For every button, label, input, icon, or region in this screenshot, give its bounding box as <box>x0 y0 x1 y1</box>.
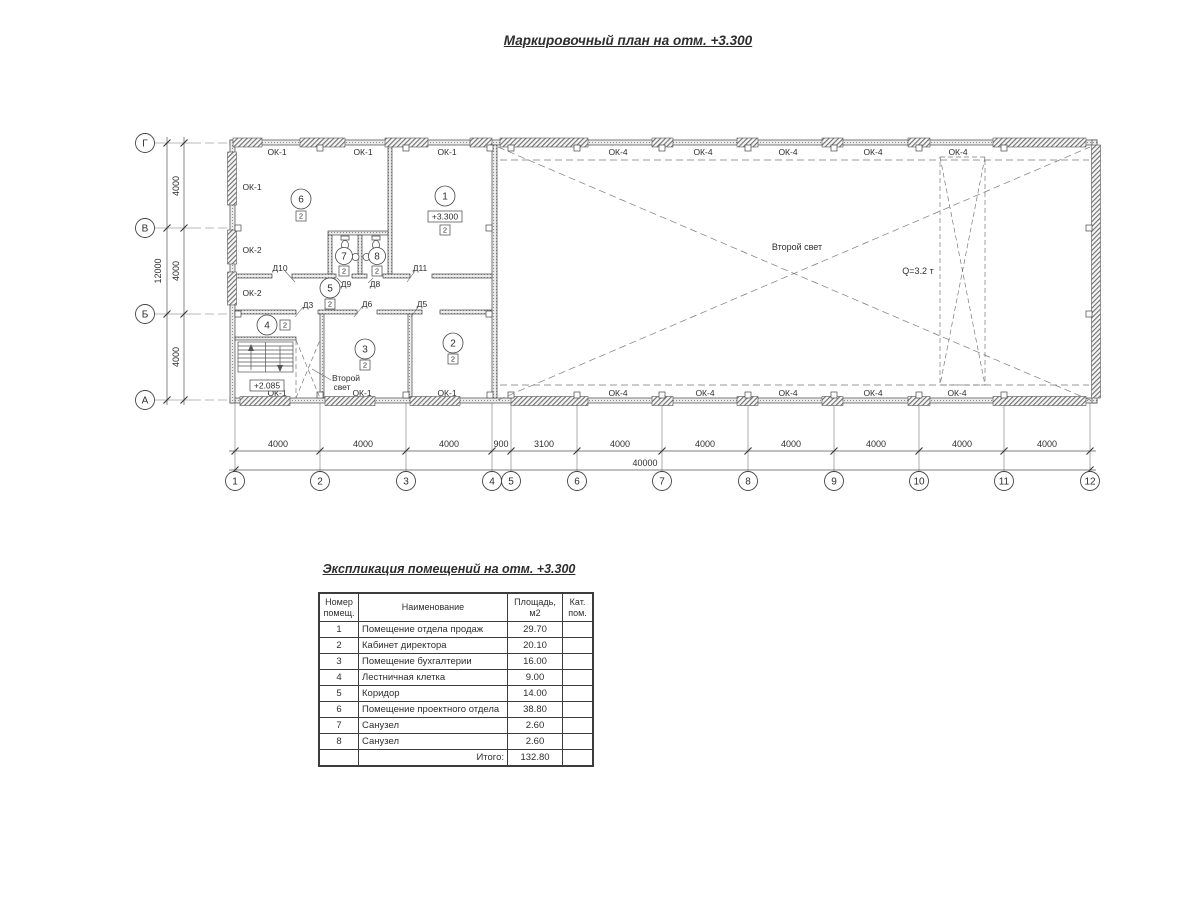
cell-room-name: Помещение бухгалтерии <box>359 654 508 670</box>
table-total-row: Итого: 132.80 <box>319 750 593 767</box>
axis-col-label: 7 <box>659 477 665 488</box>
room-number-3: 3 <box>362 345 368 356</box>
room-elevation-1: +3.300 <box>432 212 459 222</box>
cell-empty <box>563 750 594 767</box>
floor-plan: 12000 4000 4000 4000 4000 4000 4000 900 … <box>0 0 1200 545</box>
dim-bottom-segment: 4000 <box>866 439 886 449</box>
room-number-6: 6 <box>298 195 304 206</box>
annotations: +2.085 Второй свет Второй свет Q=3.2 т <box>250 242 934 392</box>
window-label: ОК-1 <box>437 388 456 398</box>
stair-opening-dashed <box>296 340 320 398</box>
table-row: 6 Помещение проектного отдела 38.80 <box>319 702 593 718</box>
header-room-category: Кат. пом. <box>563 593 594 622</box>
room-badge-6: 2 <box>299 212 303 221</box>
total-area-value: 132.80 <box>508 750 563 767</box>
cell-room-category <box>563 670 594 686</box>
window-label: ОК-4 <box>608 147 627 157</box>
room-badge-2: 2 <box>451 355 455 364</box>
dim-bottom-segment: 4000 <box>1037 439 1057 449</box>
cell-room-number: 4 <box>319 670 359 686</box>
cell-room-category <box>563 718 594 734</box>
room-number-2: 2 <box>450 339 456 350</box>
drawing-sheet: { "titles": { "plan": "Маркировочный пла… <box>0 0 1200 900</box>
dim-left-segment: 4000 <box>171 347 181 367</box>
cell-room-number: 5 <box>319 686 359 702</box>
room-badge-8: 2 <box>375 267 379 276</box>
axis-col-label: 11 <box>999 477 1010 488</box>
crane-shaft-dashed <box>940 157 985 385</box>
door-labels: Д10 Д9 Д8 Д11 Д3 Д6 Д5 <box>272 263 427 310</box>
window-label: ОК-4 <box>778 388 797 398</box>
room-number-5: 5 <box>327 284 333 295</box>
cell-room-area: 2.60 <box>508 718 563 734</box>
room-badge-7: 2 <box>342 267 346 276</box>
room-badge-1: 2 <box>443 226 447 235</box>
cell-room-name: Помещение отдела продаж <box>359 622 508 638</box>
cell-room-number: 2 <box>319 638 359 654</box>
axis-col-label: 4 <box>489 477 495 488</box>
total-label: Итого: <box>359 750 508 767</box>
cell-room-name: Лестничная клетка <box>359 670 508 686</box>
room-number-1: 1 <box>442 192 448 203</box>
second-light-hall-label: Второй свет <box>772 242 822 252</box>
cell-room-number: 7 <box>319 718 359 734</box>
room-number-4: 4 <box>264 321 270 332</box>
dim-bottom-segment: 4000 <box>695 439 715 449</box>
window-label: ОК-4 <box>948 147 967 157</box>
dim-bottom-segment: 4000 <box>268 439 288 449</box>
axis-col-label: 6 <box>574 477 580 488</box>
door-label-d6: Д6 <box>362 299 373 309</box>
header-room-name: Наименование <box>359 593 508 622</box>
dim-left-total: 12000 <box>153 258 163 283</box>
door-label-d8: Д8 <box>370 279 381 289</box>
dim-bottom-segment: 4000 <box>353 439 373 449</box>
axis-col-label: 12 <box>1084 477 1096 488</box>
stair-elevation-mark: +2.085 <box>254 381 281 391</box>
window-label: ОК-4 <box>863 147 882 157</box>
cell-room-area: 9.00 <box>508 670 563 686</box>
door-label-d9: Д9 <box>341 279 352 289</box>
table-row: 3 Помещение бухгалтерии 16.00 <box>319 654 593 670</box>
table-row: 7 Санузел 2.60 <box>319 718 593 734</box>
window-label: ОК-1 <box>437 147 456 157</box>
door-label-d10: Д10 <box>272 263 287 273</box>
window-label: ОК-4 <box>608 388 627 398</box>
cell-room-number: 8 <box>319 734 359 750</box>
dim-left-segment: 4000 <box>171 176 181 196</box>
header-room-area: Площадь, м2 <box>508 593 563 622</box>
table-row: 8 Санузел 2.60 <box>319 734 593 750</box>
cell-room-category <box>563 734 594 750</box>
room-explication-table: Номер помещ. Наименование Площадь, м2 Ка… <box>318 592 594 767</box>
axis-row-label: Г <box>142 139 148 150</box>
window-label: ОК-4 <box>695 388 714 398</box>
room-badge-4: 2 <box>283 321 287 330</box>
cell-room-area: 20.10 <box>508 638 563 654</box>
axis-col-label: 10 <box>913 477 925 488</box>
window-labels: ОК-1 ОК-1 ОК-1 ОК-4 ОК-4 ОК-4 ОК-4 ОК-4 … <box>242 147 967 398</box>
cell-room-area: 2.60 <box>508 734 563 750</box>
door-label-d5: Д5 <box>417 299 428 309</box>
cell-room-category <box>563 702 594 718</box>
window-label: ОК-2 <box>242 245 261 255</box>
axis-col-label: 3 <box>403 477 409 488</box>
room-number-8: 8 <box>374 252 380 263</box>
cell-room-category <box>563 686 594 702</box>
axis-col-label: 8 <box>745 477 751 488</box>
dim-bottom-segment: 4000 <box>952 439 972 449</box>
axis-col-label: 1 <box>232 477 238 488</box>
dim-bottom-segment: 900 <box>493 439 508 449</box>
window-label: ОК-2 <box>242 288 261 298</box>
cell-room-category <box>563 622 594 638</box>
explication-title: Экспликация помещений на отм. +3.300 <box>323 562 576 576</box>
table-row: 2 Кабинет директора 20.10 <box>319 638 593 654</box>
cell-room-area: 29.70 <box>508 622 563 638</box>
table-row: 5 Коридор 14.00 <box>319 686 593 702</box>
cell-room-name: Помещение проектного отдела <box>359 702 508 718</box>
axis-col-label: 9 <box>831 477 837 488</box>
window-label: ОК-4 <box>947 388 966 398</box>
cell-room-number: 3 <box>319 654 359 670</box>
dim-bottom-segment: 3100 <box>534 439 554 449</box>
door-label-d11: Д11 <box>413 263 428 273</box>
dim-left-segment: 4000 <box>171 261 181 281</box>
table-header-row: Номер помещ. Наименование Площадь, м2 Ка… <box>319 593 593 622</box>
second-light-stairs-label: свет <box>333 382 350 392</box>
window-label: ОК-4 <box>863 388 882 398</box>
window-label: ОК-1 <box>353 147 372 157</box>
window-label: ОК-1 <box>242 182 261 192</box>
second-light-dashed <box>498 147 1090 400</box>
dim-bottom-segment: 4000 <box>610 439 630 449</box>
room-badge-5: 2 <box>328 300 332 309</box>
cell-room-category <box>563 638 594 654</box>
window-label: ОК-1 <box>352 388 371 398</box>
cell-room-name: Санузел <box>359 734 508 750</box>
dim-bottom-segment: 4000 <box>439 439 459 449</box>
table-row: 1 Помещение отдела продаж 29.70 <box>319 622 593 638</box>
dim-bottom-segment: 4000 <box>781 439 801 449</box>
cell-room-number: 1 <box>319 622 359 638</box>
cell-room-area: 14.00 <box>508 686 563 702</box>
cell-room-name: Кабинет директора <box>359 638 508 654</box>
room-number-7: 7 <box>341 252 347 263</box>
cell-empty <box>319 750 359 767</box>
cell-room-category <box>563 654 594 670</box>
cell-room-area: 16.00 <box>508 654 563 670</box>
axis-col-label: 5 <box>508 477 514 488</box>
cell-room-name: Санузел <box>359 718 508 734</box>
window-label: ОК-1 <box>267 147 286 157</box>
cell-room-name: Коридор <box>359 686 508 702</box>
header-room-number: Номер помещ. <box>319 593 359 622</box>
dim-bottom-total: 40000 <box>632 458 657 468</box>
crane-capacity-label: Q=3.2 т <box>902 266 933 276</box>
room-badge-3: 2 <box>363 361 367 370</box>
axis-row-label: Б <box>142 310 149 321</box>
table-row: 4 Лестничная клетка 9.00 <box>319 670 593 686</box>
axis-col-label: 2 <box>317 477 323 488</box>
cell-room-area: 38.80 <box>508 702 563 718</box>
door-label-d3: Д3 <box>303 300 314 310</box>
axis-row-label: А <box>142 396 149 407</box>
leader-lines <box>285 271 418 380</box>
cell-room-number: 6 <box>319 702 359 718</box>
axis-row-label: В <box>142 224 149 235</box>
window-label: ОК-4 <box>778 147 797 157</box>
staircase <box>238 342 293 372</box>
window-label: ОК-4 <box>693 147 712 157</box>
